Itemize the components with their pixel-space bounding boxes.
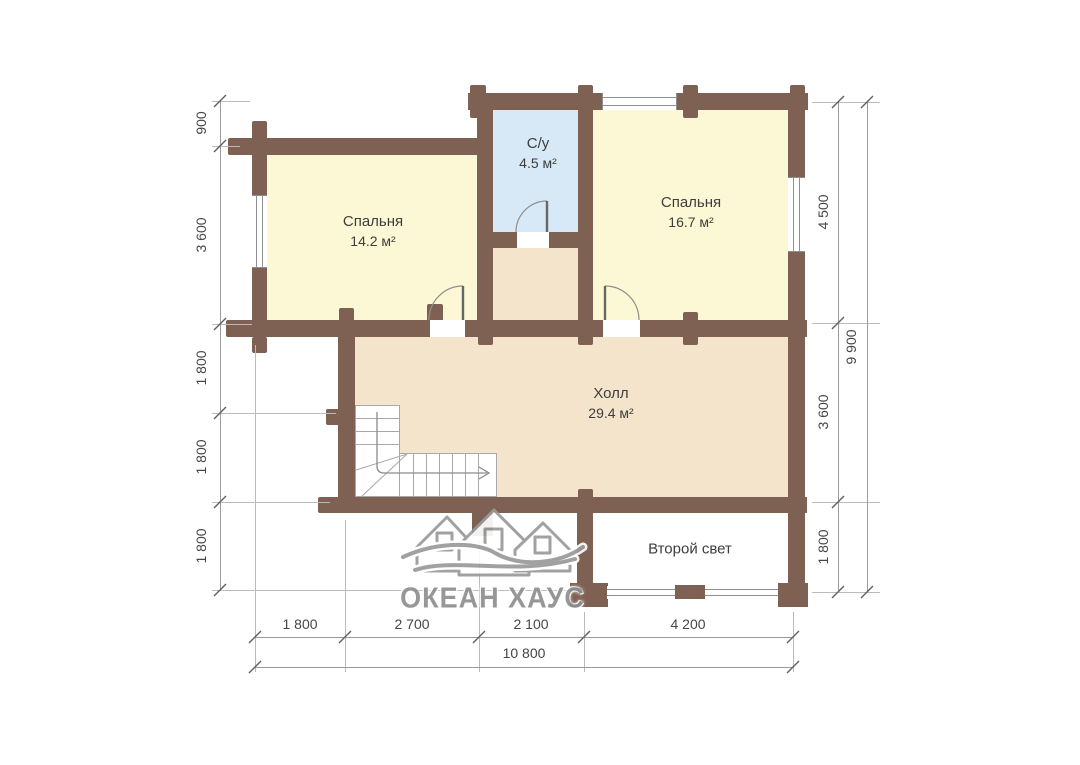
log-end (578, 224, 593, 256)
dim-bottom-total: 10 800 (503, 645, 546, 661)
log-end (790, 312, 805, 345)
door-opening (430, 320, 465, 337)
window (252, 195, 267, 268)
window (705, 586, 778, 599)
log-end (478, 130, 493, 163)
window (602, 93, 677, 110)
dim-bottom-4: 4 200 (670, 616, 705, 632)
room-hall-upper-floor (493, 248, 578, 320)
logo-text: ОКЕАН ХАУС (395, 582, 590, 615)
wall-segment (240, 138, 490, 155)
log-end (683, 312, 698, 345)
dim-right-3: 1 800 (815, 529, 831, 564)
dim-left-2: 3 600 (193, 217, 209, 252)
door-opening (517, 232, 549, 248)
wall-segment (640, 320, 807, 337)
dim-right-2: 3 600 (815, 394, 831, 429)
log-end (470, 85, 486, 118)
dim-left-1: 900 (193, 111, 209, 134)
room-area: 16.7 м² (661, 213, 721, 231)
corner-post (778, 583, 808, 607)
log-end (326, 409, 367, 425)
room-label-bedroom-left: Спальня 14.2 м² (343, 212, 403, 250)
log-end (790, 85, 805, 118)
log-end (478, 224, 493, 256)
window-mullion (675, 585, 705, 599)
room-area: 14.2 м² (343, 232, 403, 250)
room-name: Холл (588, 384, 633, 404)
room-name: Спальня (343, 212, 403, 232)
room-name: Спальня (661, 193, 721, 213)
wall-segment (788, 110, 805, 177)
room-label-second-light: Второй свет (648, 539, 732, 559)
door-opening (603, 320, 640, 337)
wall-segment (240, 320, 430, 337)
log-end (339, 308, 354, 349)
room-label-hall: Холл 29.4 м² (588, 384, 633, 422)
room-area: 4.5 м² (519, 154, 557, 172)
log-end (478, 312, 493, 345)
dim-right-1: 4 500 (815, 194, 831, 229)
log-end (318, 497, 338, 513)
room-label-bedroom-right: Спальня 16.7 м² (661, 193, 721, 231)
log-end (228, 138, 254, 155)
logo-houses-waves-icon (395, 497, 590, 583)
company-logo: ОКЕАН ХАУС (395, 497, 590, 622)
room-hall-floor (355, 337, 788, 497)
room-name: Второй свет (648, 539, 732, 559)
log-end (578, 85, 593, 118)
dim-right-total: 9 900 (843, 329, 859, 364)
window (607, 586, 675, 599)
window (788, 177, 805, 252)
wall-segment (788, 252, 805, 607)
dim-left-5: 1 800 (193, 528, 209, 563)
log-end (683, 85, 698, 118)
floor-plan-canvas: Спальня 14.2 м² С/у 4.5 м² Спальня 16.7 … (0, 0, 1080, 765)
room-area: 29.4 м² (588, 404, 633, 422)
room-name: С/у (519, 134, 557, 154)
log-end (252, 121, 267, 170)
dim-bottom-1: 1 800 (282, 616, 317, 632)
log-end (252, 337, 267, 353)
dim-left-4: 1 800 (193, 439, 209, 474)
room-label-bathroom: С/у 4.5 м² (519, 134, 557, 172)
dim-left-3: 1 800 (193, 350, 209, 385)
log-end (578, 312, 593, 345)
log-end (226, 320, 252, 337)
log-end (790, 489, 805, 521)
